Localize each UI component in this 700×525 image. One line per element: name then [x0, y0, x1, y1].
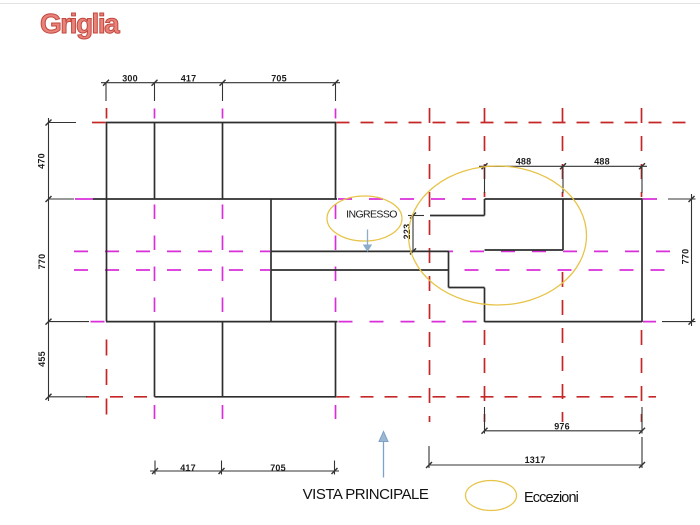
- svg-text:300: 300: [122, 73, 138, 83]
- svg-text:488: 488: [594, 156, 610, 166]
- svg-text:705: 705: [270, 463, 286, 473]
- svg-text:455: 455: [37, 351, 47, 367]
- svg-text:770: 770: [37, 254, 47, 270]
- svg-text:488: 488: [516, 156, 532, 166]
- svg-text:Griglia: Griglia: [40, 8, 120, 39]
- svg-text:417: 417: [181, 73, 197, 83]
- svg-text:INGRESSO: INGRESSO: [346, 208, 397, 220]
- svg-text:Eccezioni: Eccezioni: [524, 490, 579, 506]
- svg-text:705: 705: [271, 73, 287, 83]
- svg-text:470: 470: [37, 153, 47, 169]
- svg-text:223: 223: [402, 224, 412, 240]
- svg-text:417: 417: [180, 463, 196, 473]
- svg-text:1317: 1317: [525, 455, 546, 465]
- svg-text:770: 770: [681, 249, 691, 265]
- svg-text:VISTA PRINCIPALE: VISTA PRINCIPALE: [303, 486, 429, 503]
- svg-text:976: 976: [554, 421, 570, 431]
